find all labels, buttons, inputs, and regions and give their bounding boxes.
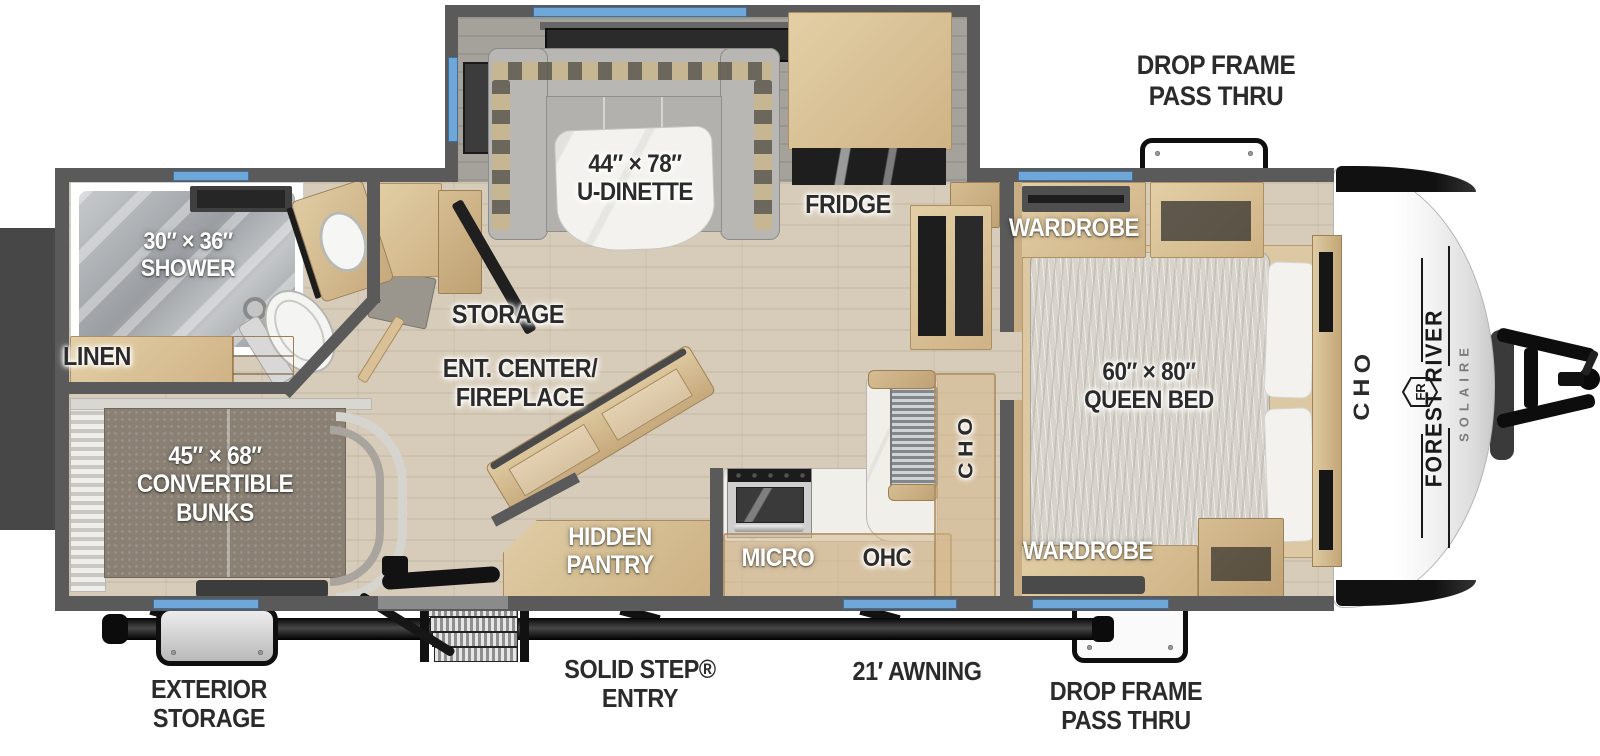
window xyxy=(1018,171,1133,181)
exterior-storage-label: EXTERIOR STORAGE xyxy=(114,675,305,734)
dinette-stripe-trim xyxy=(492,80,510,230)
solid-step-entry-label: SOLID STEP® ENTRY xyxy=(544,655,737,714)
headboard xyxy=(1312,235,1342,567)
awning-end-cap xyxy=(102,614,128,644)
window xyxy=(1032,599,1169,609)
window xyxy=(448,57,458,142)
brand-line xyxy=(1448,246,1450,366)
stove xyxy=(727,468,812,538)
entry-threshold xyxy=(378,596,508,609)
awning-end-cap xyxy=(1092,616,1114,642)
queen-bed-label: 60″ × 80″ QUEEN BED xyxy=(1049,358,1249,415)
dinette-stripe-trim xyxy=(492,62,772,80)
kitchen-tall-cabinet xyxy=(910,205,992,350)
wardrobe-top-label: WARDROBE xyxy=(998,214,1149,242)
front-cap-top-accent xyxy=(1336,166,1476,192)
ohc-bedroom-label: OHC xyxy=(1346,352,1380,423)
rear-exterior-panel xyxy=(0,228,56,530)
wall-top-left xyxy=(55,168,447,182)
bath-drawer-cabinet xyxy=(232,336,294,384)
linen-label: LINEN xyxy=(48,342,147,371)
front-cap-bottom-accent xyxy=(1336,580,1476,606)
fridge-label: FRIDGE xyxy=(794,190,902,219)
bedroom-step-mat xyxy=(1010,576,1145,594)
cabinet-open-shelf xyxy=(955,216,983,336)
kitchen-half-wall xyxy=(710,468,723,596)
svg-text:FR: FR xyxy=(1413,383,1428,401)
bedroom-wall-lower xyxy=(1000,400,1014,596)
kitchen-ohc-side xyxy=(934,373,996,600)
ohc-kitchen-vertical-label: OHC xyxy=(950,416,982,482)
bathroom-wall-vertical xyxy=(367,182,380,303)
oven-handle xyxy=(734,525,804,532)
window xyxy=(153,599,259,609)
cabinet-open-shelf xyxy=(918,216,946,336)
window xyxy=(173,171,249,181)
wall-left xyxy=(55,168,69,611)
headboard-slot xyxy=(1319,470,1333,550)
ohc-kitchen-label: OHC xyxy=(847,544,926,572)
entry-step-tread xyxy=(430,617,518,632)
fridge-cabinet xyxy=(788,12,952,150)
nightstand xyxy=(1198,518,1284,598)
dinette-stripe-trim xyxy=(754,80,772,230)
bathroom-divider-wall xyxy=(55,382,291,394)
bathroom-medicine-shelf xyxy=(190,186,292,212)
fr-logo: FR xyxy=(1402,377,1438,407)
bedroom-head-ohc xyxy=(1150,182,1264,258)
pillow xyxy=(1264,261,1317,399)
fridge-open-front xyxy=(792,148,946,185)
bunk-trim-left xyxy=(70,398,106,592)
cutting-board xyxy=(868,370,936,389)
ohc-open-slot xyxy=(1161,201,1251,241)
shower-label: 30″ × 36″ SHOWER xyxy=(98,228,278,282)
convertible-bunks-label: 45″ × 68″ CONVERTIBLE BUNKS xyxy=(103,442,328,527)
wardrobe-bottom-label: WARDROBE xyxy=(1011,537,1166,565)
bedroom-dresser-tv xyxy=(1022,186,1130,212)
oven-window xyxy=(736,487,804,523)
nightstand-open-slot xyxy=(1211,547,1271,581)
bedroom-wall-trim xyxy=(1014,400,1022,596)
entry-door-hinge xyxy=(382,556,408,576)
cutting-board xyxy=(888,484,938,501)
rv-floorplan: FOREST RIVER SOLAIRE FR xyxy=(0,0,1600,756)
window xyxy=(843,599,957,609)
drop-frame-pass-thru-bottom-label: DROP FRAME PASS THRU xyxy=(1027,677,1225,736)
drop-frame-pass-thru-top-label: DROP FRAME PASS THRU xyxy=(1117,50,1315,111)
exterior-storage-plate xyxy=(156,606,278,666)
awning-label: 21′ AWNING xyxy=(841,657,994,686)
bedroom-wall-upper xyxy=(1000,182,1014,332)
hitch-coupler-stem xyxy=(1558,372,1584,386)
window xyxy=(533,7,747,17)
storage-label: STORAGE xyxy=(436,300,580,329)
kitchen-sink xyxy=(890,386,938,488)
brand-line xyxy=(1448,428,1450,548)
bathroom-sink-basin xyxy=(312,205,375,278)
headboard-slot xyxy=(1319,252,1333,332)
hitch-crossbar xyxy=(1524,348,1538,408)
ent-center-fireplace-label: ENT. CENTER/ FIREPLACE xyxy=(412,354,628,413)
micro-label: MICRO xyxy=(728,544,829,572)
hidden-pantry-label: HIDDEN PANTRY xyxy=(538,523,682,580)
brand-model-text: SOLAIRE xyxy=(1457,342,1472,442)
u-dinette-label: 44″ × 78″ U-DINETTE xyxy=(545,150,725,207)
bedroom-wall-trim xyxy=(1014,182,1022,332)
